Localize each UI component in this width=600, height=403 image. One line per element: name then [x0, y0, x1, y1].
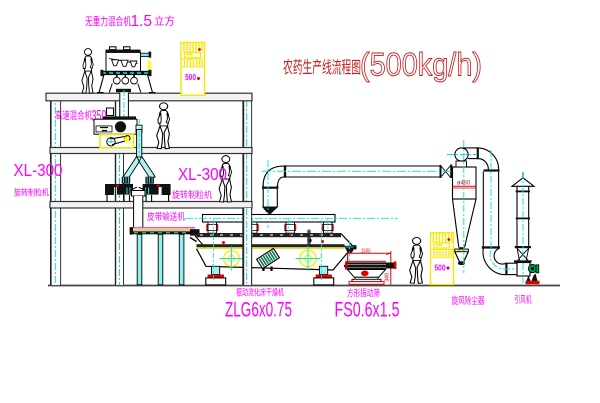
- svg-text:振动流化床干燥机: 振动流化床干燥机: [236, 287, 284, 298]
- svg-text:无重力混合机: 无重力混合机: [85, 14, 131, 28]
- svg-text:引风机: 引风机: [515, 294, 532, 306]
- svg-text:旋转制粒机: 旋转制粒机: [172, 189, 212, 200]
- svg-text:旋转制粒机: 旋转制粒机: [14, 188, 49, 198]
- svg-text:农药生产线流程图: 农药生产线流程图: [283, 58, 361, 77]
- svg-text:(500kg/h): (500kg/h): [360, 47, 482, 83]
- svg-text:立方: 立方: [154, 15, 175, 28]
- svg-text:500: 500: [435, 263, 446, 273]
- svg-text:高速混合机: 高速混合机: [55, 109, 92, 122]
- svg-text:1500: 1500: [361, 249, 371, 255]
- svg-text:旋风除尘器: 旋风除尘器: [452, 295, 485, 307]
- svg-text:1.5: 1.5: [131, 13, 153, 30]
- svg-text:ZLG6x0.75: ZLG6x0.75: [225, 298, 292, 322]
- svg-text:FS0.6x1.5: FS0.6x1.5: [335, 298, 400, 322]
- svg-text:340: 340: [385, 273, 391, 282]
- svg-text:500: 500: [185, 72, 196, 82]
- svg-text:皮带输送机: 皮带输送机: [147, 211, 185, 223]
- svg-text:XL-300: XL-300: [178, 164, 227, 184]
- svg-text:XL-300: XL-300: [14, 160, 63, 180]
